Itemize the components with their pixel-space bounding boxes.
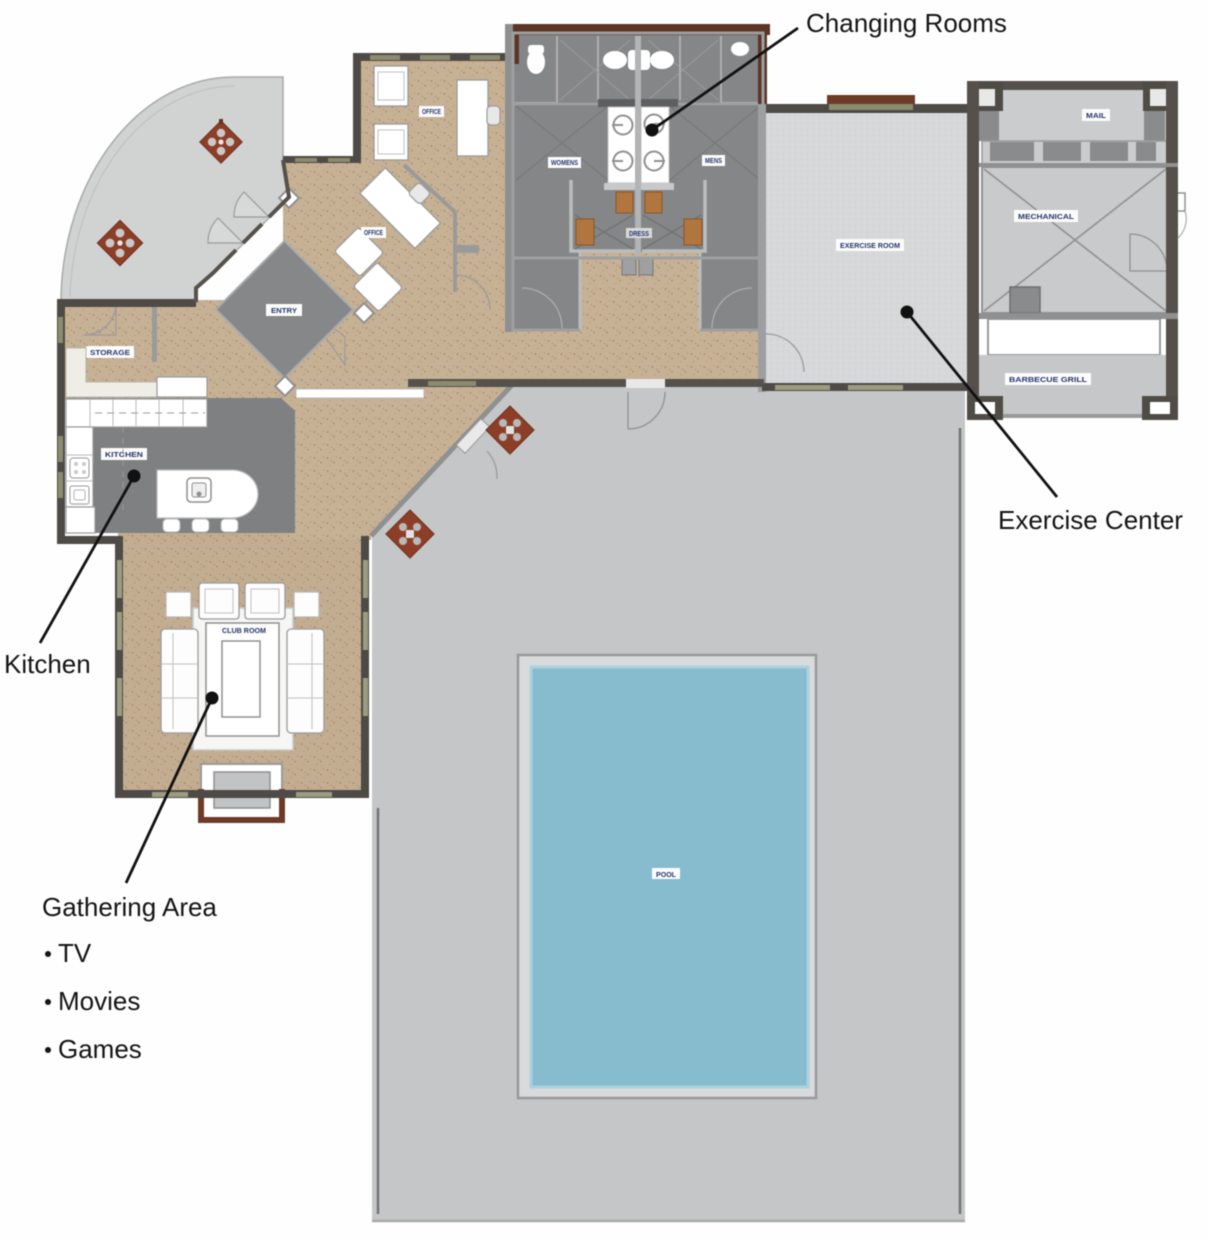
svg-text:OFFICE: OFFICE bbox=[364, 230, 383, 237]
svg-text:TV: TV bbox=[58, 938, 92, 968]
svg-text:POOL: POOL bbox=[656, 872, 677, 879]
svg-text:WOMENS: WOMENS bbox=[551, 160, 578, 167]
svg-text:Exercise Center: Exercise Center bbox=[998, 505, 1183, 535]
svg-text:STORAGE: STORAGE bbox=[90, 350, 130, 357]
svg-text:Movies: Movies bbox=[58, 986, 140, 1016]
svg-text:MAIL: MAIL bbox=[1086, 113, 1107, 120]
svg-text:MECHANICAL: MECHANICAL bbox=[1018, 214, 1075, 221]
svg-text:MENS: MENS bbox=[705, 158, 722, 165]
svg-text:KITCHEN: KITCHEN bbox=[105, 452, 143, 459]
svg-text:Changing Rooms: Changing Rooms bbox=[806, 8, 1007, 38]
svg-text:Games: Games bbox=[58, 1034, 142, 1064]
svg-text:ENTRY: ENTRY bbox=[271, 308, 297, 315]
svg-text:Gathering Area: Gathering Area bbox=[42, 892, 217, 922]
svg-text:OFFICE: OFFICE bbox=[422, 109, 441, 116]
svg-text:EXERCISE ROOM: EXERCISE ROOM bbox=[840, 243, 900, 250]
svg-text:Kitchen: Kitchen bbox=[4, 649, 91, 679]
svg-text:BARBECUE GRILL: BARBECUE GRILL bbox=[1009, 377, 1088, 384]
svg-text:DRESS: DRESS bbox=[629, 231, 649, 238]
svg-text:CLUB ROOM: CLUB ROOM bbox=[222, 628, 266, 635]
